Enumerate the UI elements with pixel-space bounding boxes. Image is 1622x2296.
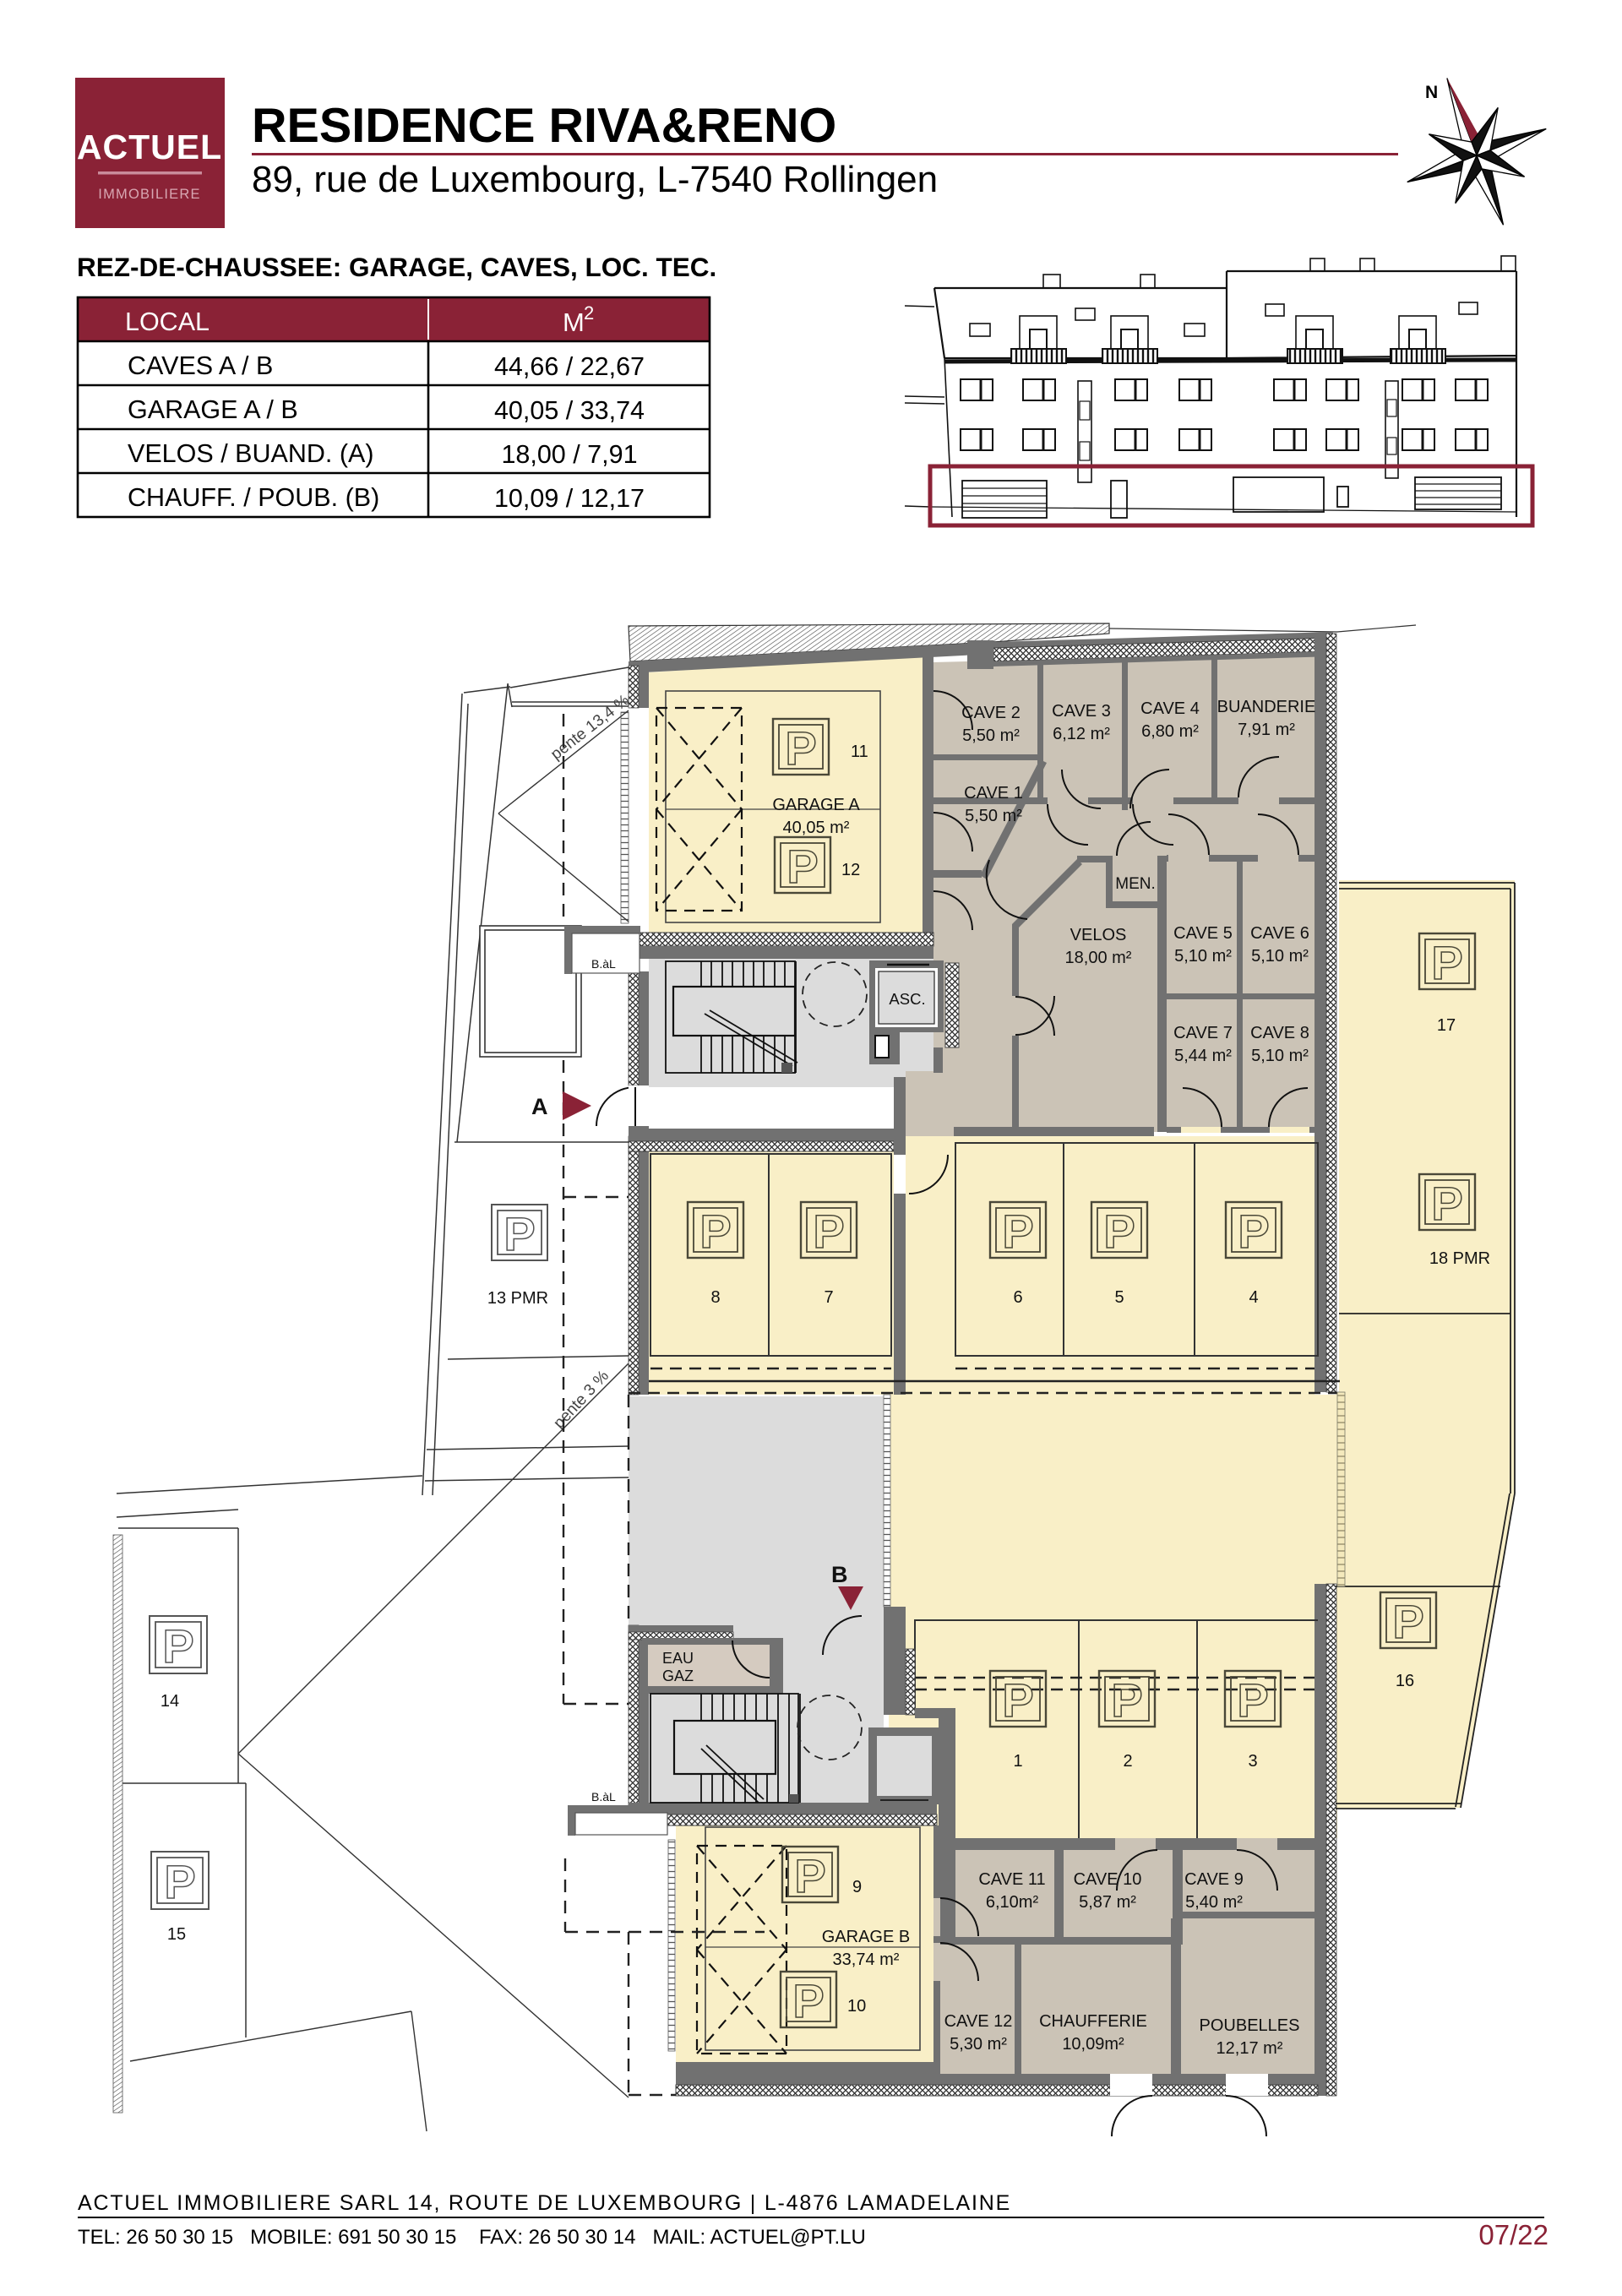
svg-text:5,40 m²: 5,40 m² [1185, 1893, 1243, 1912]
svg-text:10,09 / 12,17: 10,09 / 12,17 [494, 484, 645, 513]
svg-text:07/22: 07/22 [1478, 2219, 1549, 2250]
svg-text:5,10 m²: 5,10 m² [1174, 947, 1232, 966]
svg-text:P: P [792, 1974, 824, 2027]
svg-text:A: A [531, 1094, 548, 1119]
svg-text:CAVE 12: CAVE 12 [944, 2012, 1013, 2031]
svg-text:CAVE 9: CAVE 9 [1184, 1870, 1244, 1889]
svg-text:5,50 m²: 5,50 m² [965, 807, 1022, 825]
svg-text:33,74 m²: 33,74 m² [833, 1951, 900, 1969]
svg-text:17: 17 [1437, 1016, 1456, 1035]
svg-text:7: 7 [824, 1288, 833, 1307]
svg-text:18 PMR: 18 PMR [1429, 1249, 1490, 1268]
svg-text:CAVE 6: CAVE 6 [1250, 924, 1309, 943]
svg-text:5: 5 [1114, 1288, 1124, 1307]
svg-text:11: 11 [851, 743, 868, 761]
svg-text:P: P [1237, 1673, 1268, 1727]
svg-text:6,12 m²: 6,12 m² [1053, 725, 1110, 743]
svg-text:10,09m²: 10,09m² [1062, 2035, 1124, 2054]
svg-text:CAVE 3: CAVE 3 [1052, 702, 1111, 721]
svg-text:N: N [1425, 83, 1438, 102]
svg-text:6: 6 [1013, 1288, 1022, 1307]
svg-text:16: 16 [1396, 1672, 1414, 1690]
svg-text:7,91 m²: 7,91 m² [1238, 721, 1295, 739]
svg-text:14: 14 [161, 1692, 179, 1711]
svg-text:12: 12 [841, 861, 860, 879]
svg-text:5,10 m²: 5,10 m² [1251, 947, 1309, 966]
svg-text:5,50 m²: 5,50 m² [962, 726, 1020, 745]
svg-text:LOCAL: LOCAL [125, 307, 210, 336]
svg-text:15: 15 [167, 1925, 186, 1944]
svg-text:12,17 m²: 12,17 m² [1216, 2039, 1283, 2058]
svg-text:5,30 m²: 5,30 m² [950, 2035, 1007, 2054]
svg-text:M: M [563, 307, 585, 337]
svg-text:pente 3 %: pente 3 % [550, 1367, 612, 1432]
svg-text:5,87 m²: 5,87 m² [1079, 1893, 1136, 1912]
svg-text:40,05 m²: 40,05 m² [783, 819, 850, 837]
svg-text:5,44 m²: 5,44 m² [1174, 1047, 1232, 1065]
svg-text:BUANDERIE: BUANDERIE [1217, 698, 1316, 716]
svg-text:CAVES A / B: CAVES A / B [128, 351, 273, 380]
svg-text:B.àL: B.àL [591, 957, 616, 971]
svg-text:P: P [1103, 1205, 1135, 1258]
svg-text:EAU: EAU [662, 1650, 694, 1667]
svg-text:P: P [503, 1207, 535, 1260]
svg-text:18,00 m²: 18,00 m² [1065, 949, 1132, 967]
svg-text:REZ-DE-CHAUSSEE: GARAGE, CAVES: REZ-DE-CHAUSSEE: GARAGE, CAVES, LOC. TEC… [77, 252, 716, 282]
svg-text:GARAGE B: GARAGE B [822, 1928, 910, 1946]
svg-text:GARAGE A: GARAGE A [772, 796, 860, 814]
svg-text:CAVE 11: CAVE 11 [978, 1870, 1045, 1889]
svg-text:P: P [1431, 936, 1462, 989]
svg-text:P: P [1002, 1205, 1033, 1258]
svg-text:CAVE 2: CAVE 2 [961, 704, 1021, 722]
svg-text:ACTUEL IMMOBILIERE SARL 14,: ACTUEL IMMOBILIERE SARL 14, ROUTE DE LUX… [78, 2191, 1011, 2215]
svg-text:RESIDENCE RIVA&RENO: RESIDENCE RIVA&RENO [252, 99, 836, 153]
svg-text:CAVE 5: CAVE 5 [1173, 924, 1233, 943]
svg-text:P: P [1238, 1205, 1269, 1258]
svg-text:B.àL: B.àL [591, 1790, 616, 1804]
svg-text:CAVE 8: CAVE 8 [1250, 1024, 1309, 1042]
svg-text:89, rue de Luxembourg, L-7540: 89, rue de Luxembourg, L-7540 Rollingen [252, 159, 938, 200]
svg-text:44,66 / 22,67: 44,66 / 22,67 [494, 352, 645, 381]
svg-text:18,00 / 7,91: 18,00 / 7,91 [501, 440, 637, 469]
svg-text:ACTUEL: ACTUEL [77, 128, 222, 166]
svg-text:POUBELLES: POUBELLES [1200, 2016, 1300, 2035]
svg-text:VELOS: VELOS [1070, 926, 1127, 944]
svg-text:6,10m²: 6,10m² [986, 1893, 1039, 1912]
svg-text:VELOS / BUAND. (A): VELOS / BUAND. (A) [128, 439, 374, 468]
svg-text:5,10 m²: 5,10 m² [1251, 1047, 1309, 1065]
svg-text:9: 9 [852, 1878, 862, 1896]
svg-text:P: P [813, 1205, 844, 1258]
svg-text:ASC.: ASC. [889, 990, 925, 1008]
svg-text:3: 3 [1248, 1752, 1257, 1771]
svg-text:4: 4 [1249, 1288, 1258, 1307]
svg-text:10: 10 [847, 1997, 866, 2016]
svg-text:CHAUFF. / POUB. (B): CHAUFF. / POUB. (B) [128, 483, 379, 512]
svg-text:1: 1 [1013, 1752, 1022, 1771]
svg-text:2: 2 [1123, 1752, 1132, 1771]
svg-text:8: 8 [710, 1288, 720, 1307]
svg-text:TEL: 26 50 30 15 MOBILE: 691: TEL: 26 50 30 15 MOBILE: 691 50 30 15 FA… [78, 2226, 866, 2249]
svg-text:P: P [164, 1855, 195, 1908]
svg-text:6,80 m²: 6,80 m² [1141, 722, 1199, 741]
svg-text:P: P [1002, 1673, 1033, 1727]
svg-text:P: P [787, 840, 818, 893]
svg-text:P: P [785, 721, 816, 775]
svg-text:IMMOBILIERE: IMMOBILIERE [98, 187, 200, 202]
svg-text:P: P [1111, 1673, 1142, 1727]
svg-text:GARAGE A / B: GARAGE A / B [128, 395, 298, 424]
svg-text:P: P [1392, 1595, 1423, 1648]
svg-text:P: P [162, 1619, 193, 1673]
svg-text:P: P [794, 1849, 825, 1902]
svg-text:13 PMR: 13 PMR [487, 1289, 548, 1308]
svg-text:CAVE 4: CAVE 4 [1140, 699, 1200, 718]
svg-text:GAZ: GAZ [662, 1668, 694, 1684]
svg-text:P: P [699, 1205, 731, 1258]
svg-text:2: 2 [584, 302, 594, 324]
svg-text:40,05 / 33,74: 40,05 / 33,74 [494, 396, 645, 425]
svg-text:P: P [1431, 1177, 1462, 1230]
svg-text:CHAUFFERIE: CHAUFFERIE [1039, 2012, 1147, 2031]
svg-text:B: B [831, 1562, 848, 1587]
svg-text:MEN.: MEN. [1115, 875, 1156, 893]
svg-text:CAVE 7: CAVE 7 [1173, 1024, 1233, 1042]
svg-text:CAVE 10: CAVE 10 [1074, 1870, 1142, 1889]
svg-text:CAVE 1: CAVE 1 [964, 784, 1023, 803]
